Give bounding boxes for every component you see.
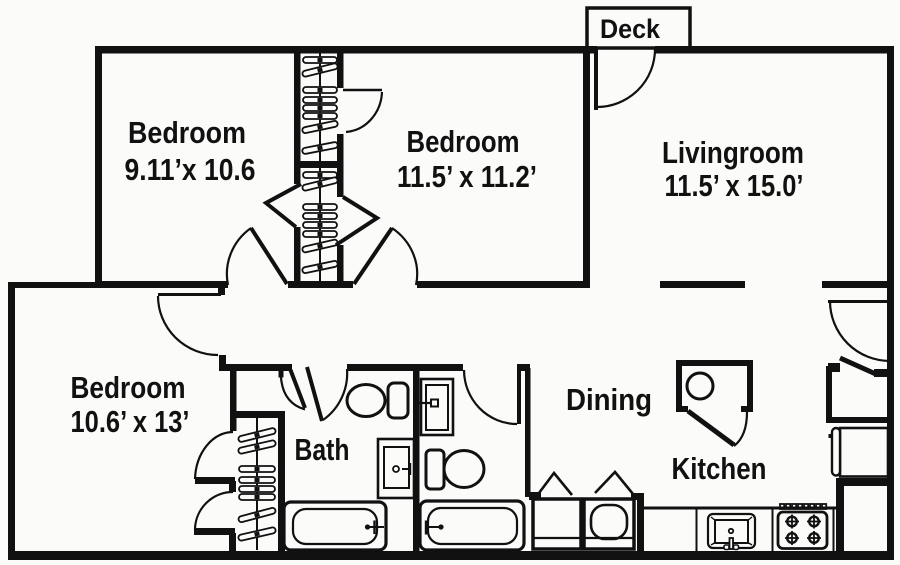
svg-text:9.11’x 10.6: 9.11’x 10.6 — [125, 152, 256, 187]
svg-text:Bedroom: Bedroom — [71, 370, 186, 405]
svg-text:Dining: Dining — [566, 382, 652, 417]
svg-text:11.5’ x 11.2’: 11.5’ x 11.2’ — [397, 159, 537, 194]
svg-text:Bath: Bath — [295, 432, 350, 467]
svg-text:Bedroom: Bedroom — [407, 124, 520, 159]
svg-text:Bedroom: Bedroom — [128, 115, 246, 150]
svg-text:Livingroom: Livingroom — [662, 135, 804, 170]
svg-text:10.6’ x 13’: 10.6’ x 13’ — [71, 404, 190, 439]
svg-text:Deck: Deck — [600, 14, 661, 44]
svg-text:11.5’ x 15.0’: 11.5’ x 15.0’ — [665, 168, 804, 203]
svg-text:Kitchen: Kitchen — [672, 451, 767, 486]
